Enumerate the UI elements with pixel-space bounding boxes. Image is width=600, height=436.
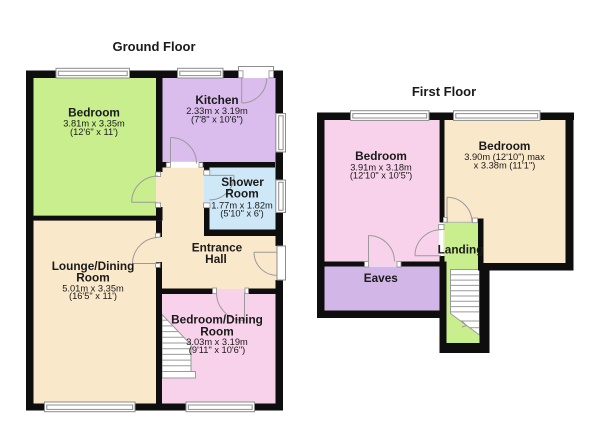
svg-text:First Floor: First Floor	[412, 84, 476, 99]
svg-text:Landing: Landing	[438, 243, 484, 257]
svg-text:(9'11" x 10'6"): (9'11" x 10'6")	[189, 345, 246, 355]
svg-text:Room: Room	[76, 270, 109, 284]
svg-text:(7'8" x 10'6"): (7'8" x 10'6")	[191, 114, 243, 124]
svg-text:Eaves: Eaves	[364, 271, 399, 285]
svg-text:Bedroom: Bedroom	[355, 149, 407, 163]
svg-text:(12'10" x 10'5"): (12'10" x 10'5")	[350, 171, 412, 181]
svg-text:Bedroom: Bedroom	[479, 139, 531, 153]
svg-text:Ground Floor: Ground Floor	[112, 39, 195, 54]
svg-text:Bedroom: Bedroom	[68, 106, 120, 120]
svg-text:Hall: Hall	[205, 252, 227, 266]
svg-text:(16'5" x 11'): (16'5" x 11')	[69, 291, 117, 301]
svg-text:(12'6" x 11'): (12'6" x 11')	[70, 127, 118, 137]
svg-text:Room: Room	[225, 186, 258, 200]
svg-text:x 3.38m (11'1"): x 3.38m (11'1")	[474, 160, 536, 170]
svg-text:(5'10" x 6'): (5'10" x 6')	[220, 208, 264, 218]
